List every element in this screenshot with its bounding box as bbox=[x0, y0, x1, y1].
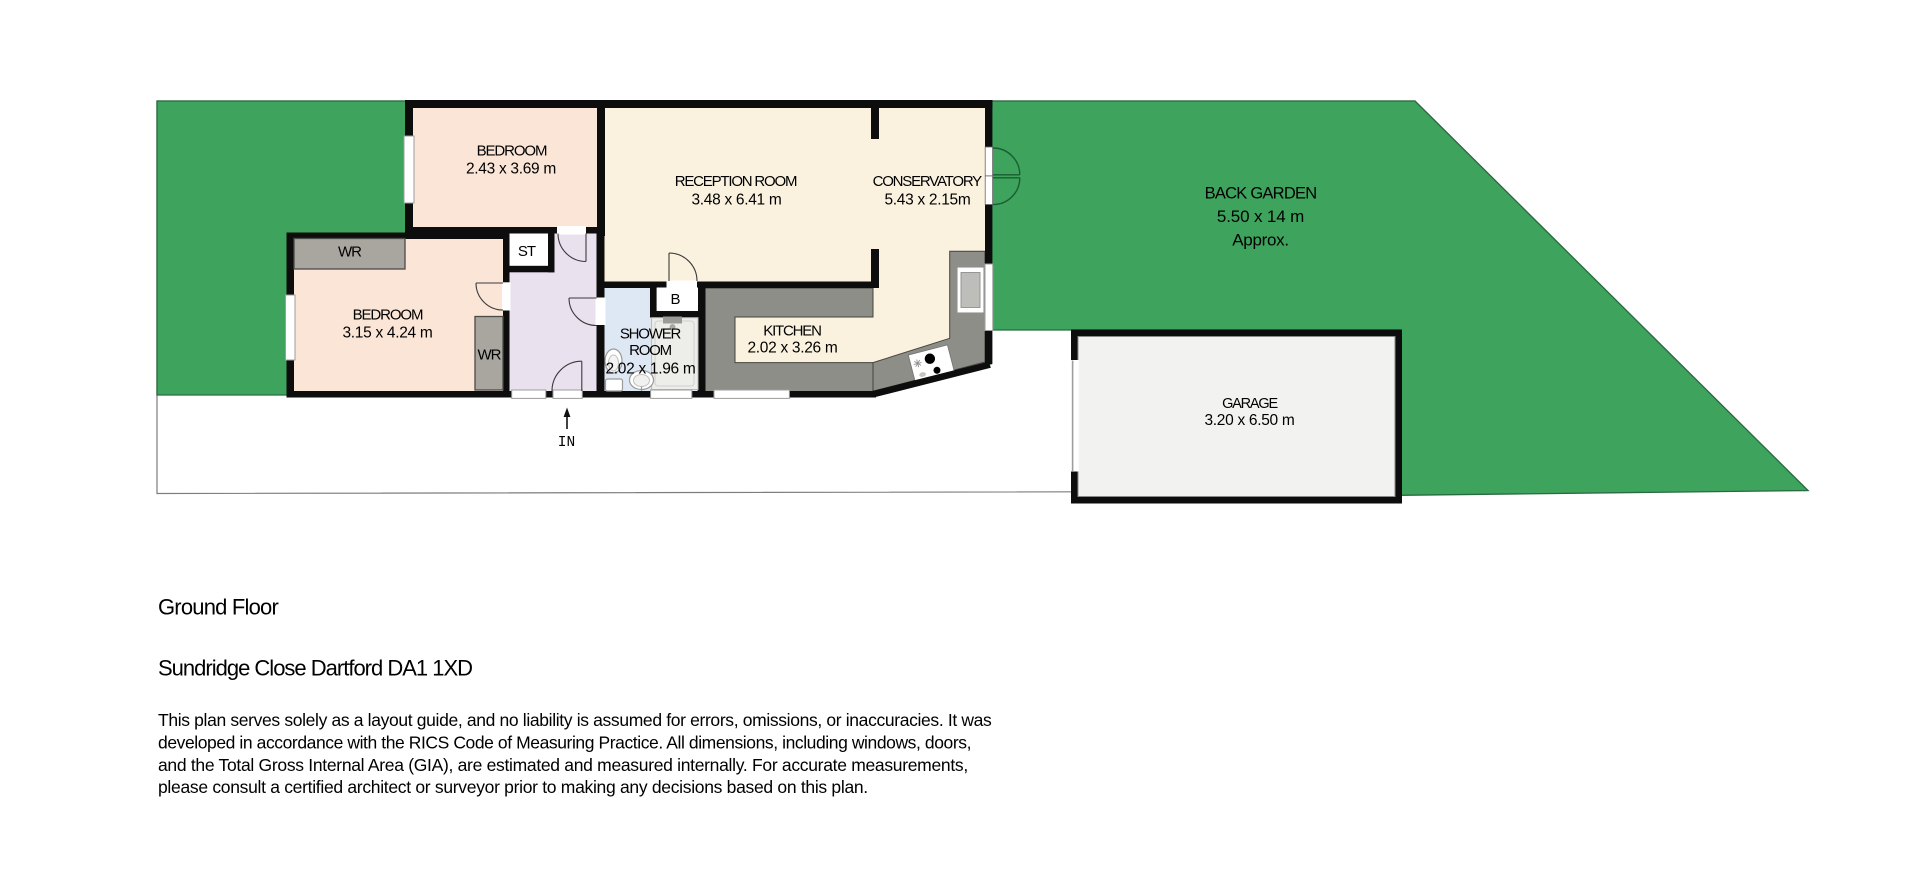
svg-text:3.15 x 4.24 m: 3.15 x 4.24 m bbox=[342, 325, 432, 342]
svg-text:BEDROOM: BEDROOM bbox=[477, 143, 547, 160]
svg-text:GARAGE: GARAGE bbox=[1222, 396, 1278, 412]
svg-text:and the Total Gross Internal A: and the Total Gross Internal Area (GIA),… bbox=[158, 755, 968, 775]
svg-text:2.43 x 3.69 m: 2.43 x 3.69 m bbox=[466, 161, 556, 178]
svg-text:CONSERVATORY: CONSERVATORY bbox=[873, 173, 983, 190]
svg-text:2.02 x 1.96 m: 2.02 x 1.96 m bbox=[605, 361, 695, 378]
svg-text:WR: WR bbox=[478, 347, 502, 364]
svg-text:ROOM: ROOM bbox=[629, 342, 672, 359]
svg-text:SHOWER: SHOWER bbox=[620, 326, 682, 343]
svg-text:ST: ST bbox=[518, 243, 536, 260]
svg-text:B: B bbox=[670, 291, 680, 308]
svg-text:5.43 x 2.15m: 5.43 x 2.15m bbox=[884, 191, 970, 208]
svg-text:2.02 x 3.26 m: 2.02 x 3.26 m bbox=[747, 340, 837, 357]
svg-text:5.50 x 14 m: 5.50 x 14 m bbox=[1217, 207, 1304, 226]
svg-text:RECEPTION ROOM: RECEPTION ROOM bbox=[675, 173, 797, 190]
svg-text:BACK GARDEN: BACK GARDEN bbox=[1205, 185, 1317, 203]
svg-text:3.48 x 6.41 m: 3.48 x 6.41 m bbox=[691, 191, 781, 208]
svg-text:Ground Floor: Ground Floor bbox=[158, 595, 278, 620]
svg-text:3.20 x 6.50 m: 3.20 x 6.50 m bbox=[1204, 412, 1294, 429]
svg-text:please consult a certified arc: please consult a certified architect or … bbox=[158, 777, 868, 797]
svg-text:WR: WR bbox=[338, 243, 362, 260]
svg-text:This plan serves solely as a l: This plan serves solely as a layout guid… bbox=[158, 710, 992, 730]
svg-text:Approx.: Approx. bbox=[1232, 231, 1289, 250]
svg-text:developed in accordance with t: developed in accordance with the RICS Co… bbox=[158, 732, 971, 752]
svg-text:KITCHEN: KITCHEN bbox=[763, 323, 821, 340]
svg-text:BEDROOM: BEDROOM bbox=[353, 307, 423, 324]
svg-text:Sundridge Close Dartford DA1 1: Sundridge Close Dartford DA1 1XD bbox=[158, 656, 472, 681]
svg-text:IN: IN bbox=[558, 435, 575, 451]
